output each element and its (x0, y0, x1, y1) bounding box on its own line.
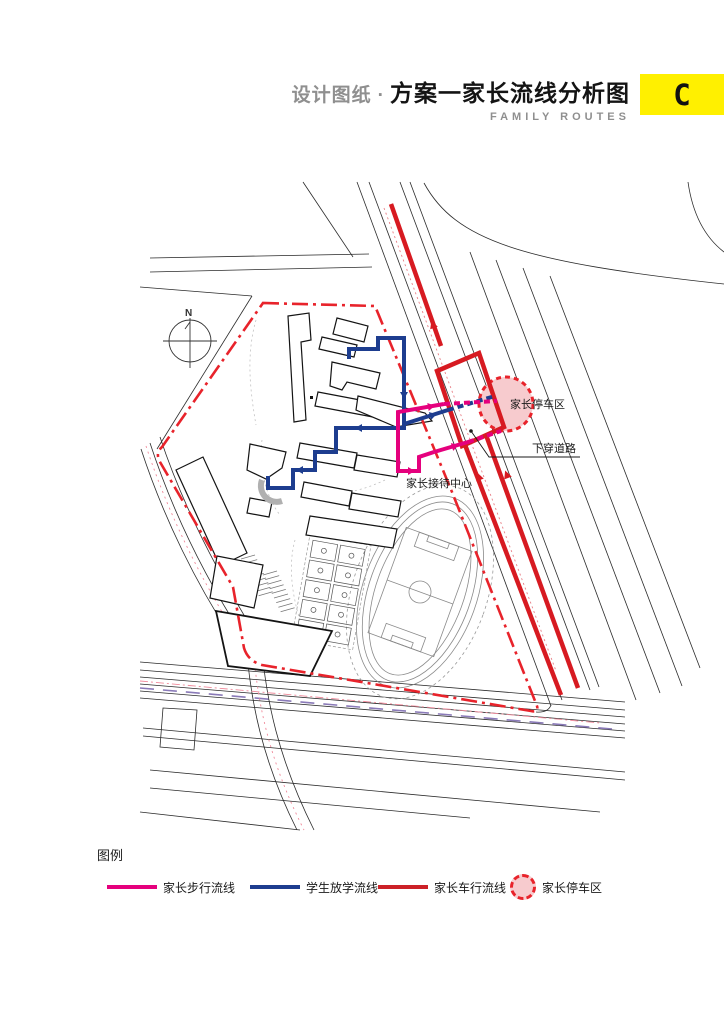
legend-item: 学生放学流线 (250, 870, 378, 904)
legend-item-label: 家长车行流线 (434, 879, 506, 896)
reception-center-label: 家长接待中心 (406, 476, 472, 490)
title-main: 方案一家长流线分析图 (390, 74, 630, 108)
north-label: N (185, 308, 192, 319)
road-lines (140, 182, 724, 830)
legend-line-swatch (378, 885, 428, 889)
sheet-title: 设计图纸 · 方案一家长流线分析图 (292, 74, 630, 108)
legend-item: 家长步行流线 (107, 870, 235, 904)
parking-area-label: 家长停车区 (510, 397, 565, 411)
legend: 图例 家长步行流线学生放学流线家长车行流线家长停车区 (97, 845, 657, 910)
title-separator: · (378, 85, 384, 107)
legend-circle-swatch (510, 874, 536, 900)
legend-item: 家长停车区 (510, 870, 602, 904)
legend-item-label: 家长停车区 (542, 879, 602, 896)
buildings (176, 313, 432, 676)
title-prefix: 设计图纸 (292, 80, 372, 107)
underpass-label: 下穿道路 (532, 441, 576, 455)
legend-line-swatch (250, 885, 300, 889)
canopy-arc (261, 480, 282, 502)
drawing-sheet: 设计图纸 · 方案一家长流线分析图 FAMILY ROUTES C (0, 0, 724, 1024)
legend-title: 图例 (97, 845, 657, 864)
legend-item-label: 学生放学流线 (306, 879, 378, 896)
sheet-code: C (673, 78, 690, 112)
sheet-header: 设计图纸 · 方案一家长流线分析图 FAMILY ROUTES (292, 74, 630, 123)
north-arrow: N (163, 308, 217, 368)
sheet-subtitle: FAMILY ROUTES (292, 111, 630, 123)
legend-item-label: 家长步行流线 (163, 879, 235, 896)
sheet-code-box: C (640, 74, 724, 115)
legend-items: 家长步行流线学生放学流线家长车行流线家长停车区 (97, 870, 657, 910)
legend-item: 家长车行流线 (378, 870, 506, 904)
metro-line (140, 688, 612, 729)
legend-line-swatch (107, 885, 157, 889)
